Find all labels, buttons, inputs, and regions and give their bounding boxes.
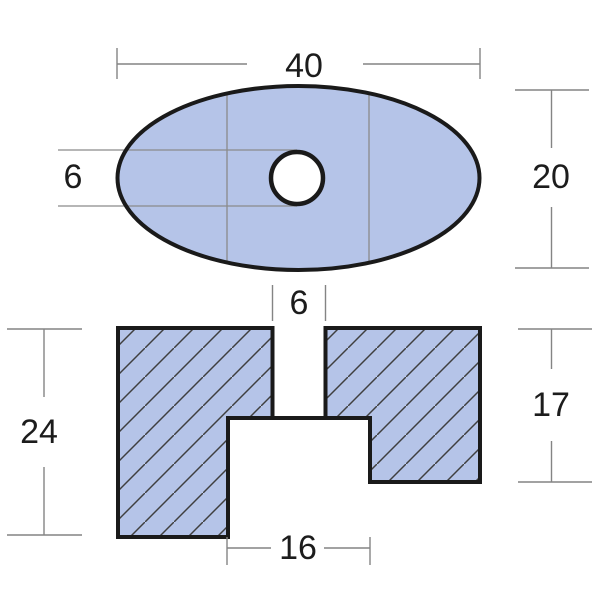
technical-drawing: 40 20 6 6 24 17 16: [0, 0, 600, 600]
dimension-height-20: 20: [515, 90, 589, 268]
top-view: [58, 86, 480, 270]
dimension-notch-16: 16: [227, 529, 370, 567]
dim-label-overall-24: 24: [20, 413, 58, 451]
dim-label-width-40: 40: [285, 47, 323, 85]
section-left-piece: [118, 328, 273, 537]
dimension-width-40: 40: [117, 47, 480, 85]
dim-label-notch-16: 16: [279, 529, 317, 567]
drawing-canvas: 40 20 6 6 24 17 16: [0, 0, 600, 600]
dim-label-hole-6: 6: [64, 158, 83, 196]
center-hole: [271, 152, 323, 204]
dim-label-height-20: 20: [532, 158, 570, 196]
dimension-right-17: 17: [518, 329, 592, 482]
dim-label-slot-6: 6: [290, 284, 309, 322]
section-right-piece: [326, 328, 481, 482]
section-view: [118, 328, 480, 537]
dim-label-right-17: 17: [532, 386, 570, 424]
dimension-slot-6: 6: [273, 284, 326, 322]
dimension-overall-24: 24: [7, 329, 82, 535]
dimension-hole-6: 6: [64, 158, 83, 196]
